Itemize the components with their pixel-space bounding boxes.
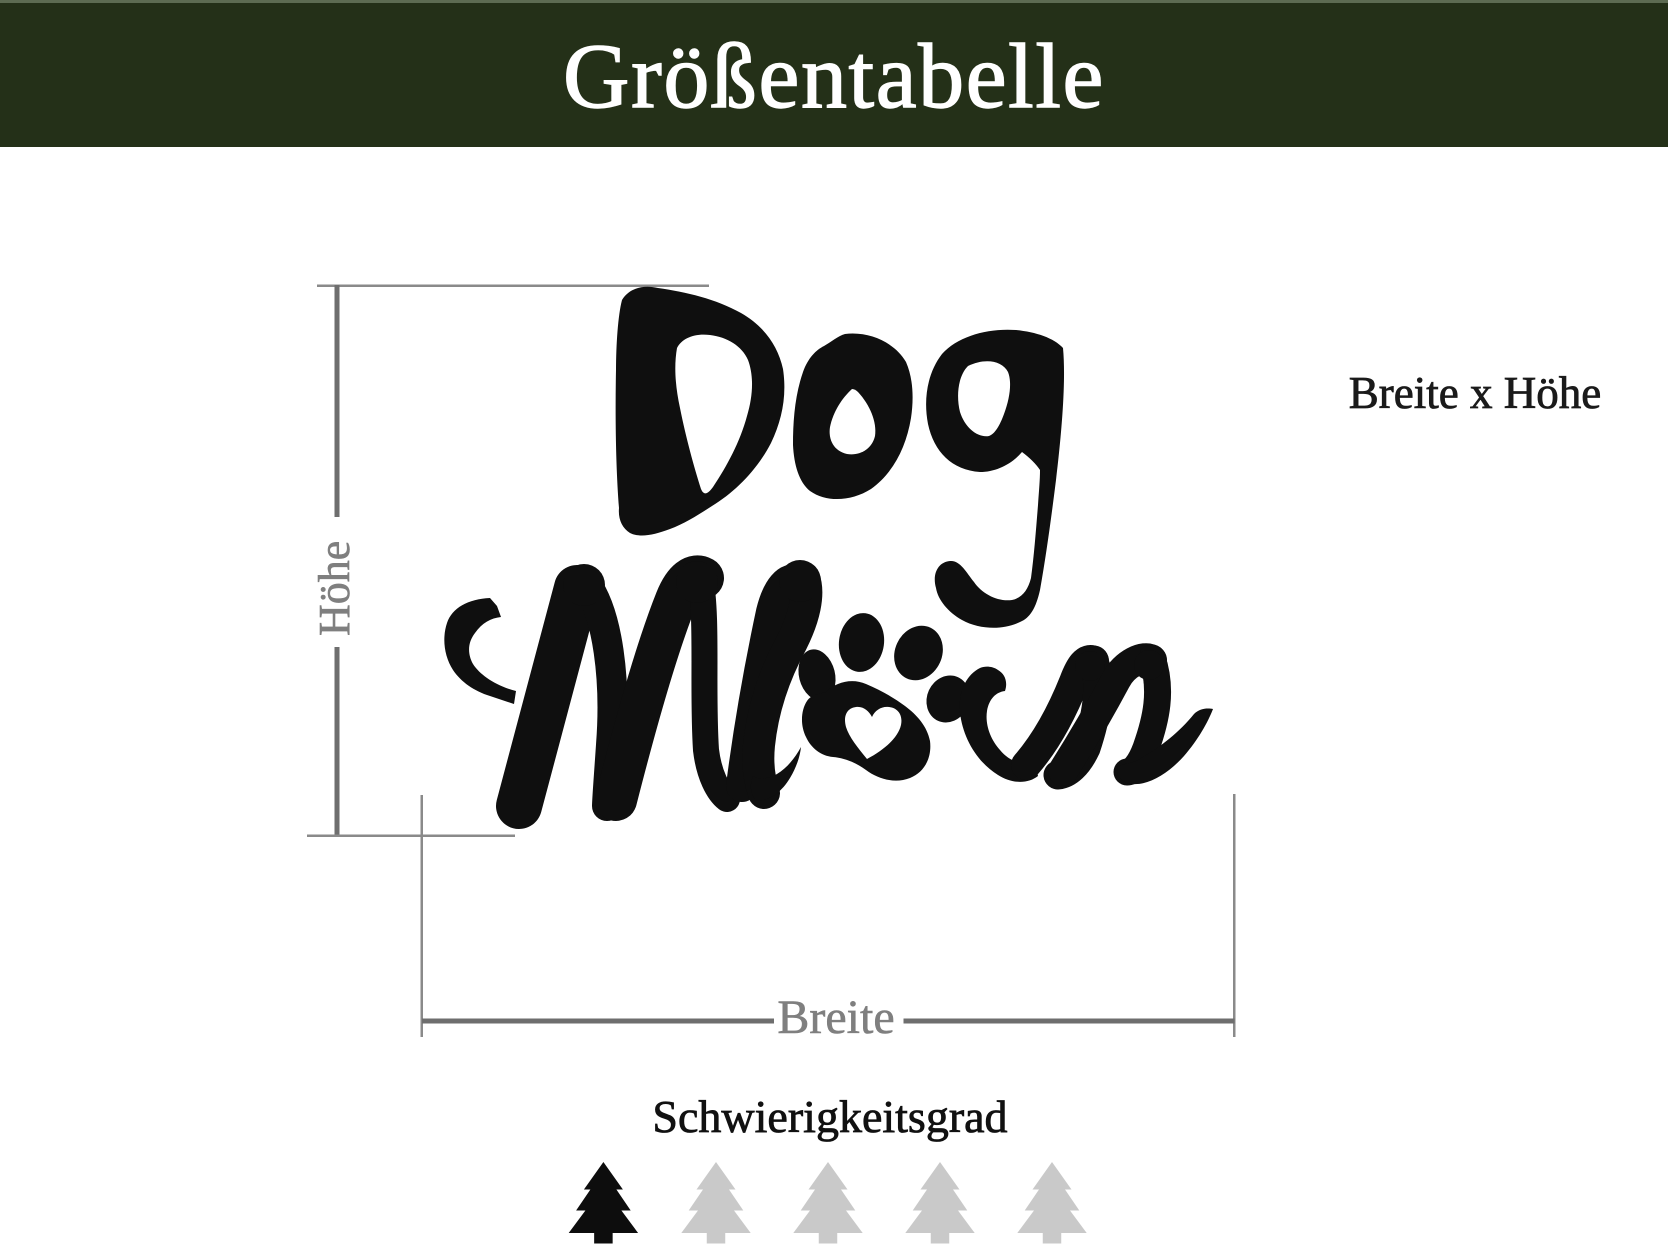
svg-text:Höhe: Höhe bbox=[310, 541, 359, 636]
svg-text:Schwierigkeitsgrad: Schwierigkeitsgrad bbox=[652, 1091, 1007, 1142]
svg-text:Breite: Breite bbox=[777, 991, 894, 1044]
svg-text:Größentabelle: Größentabelle bbox=[563, 25, 1105, 127]
svg-text:Breite x Höhe: Breite x Höhe bbox=[1349, 368, 1601, 418]
